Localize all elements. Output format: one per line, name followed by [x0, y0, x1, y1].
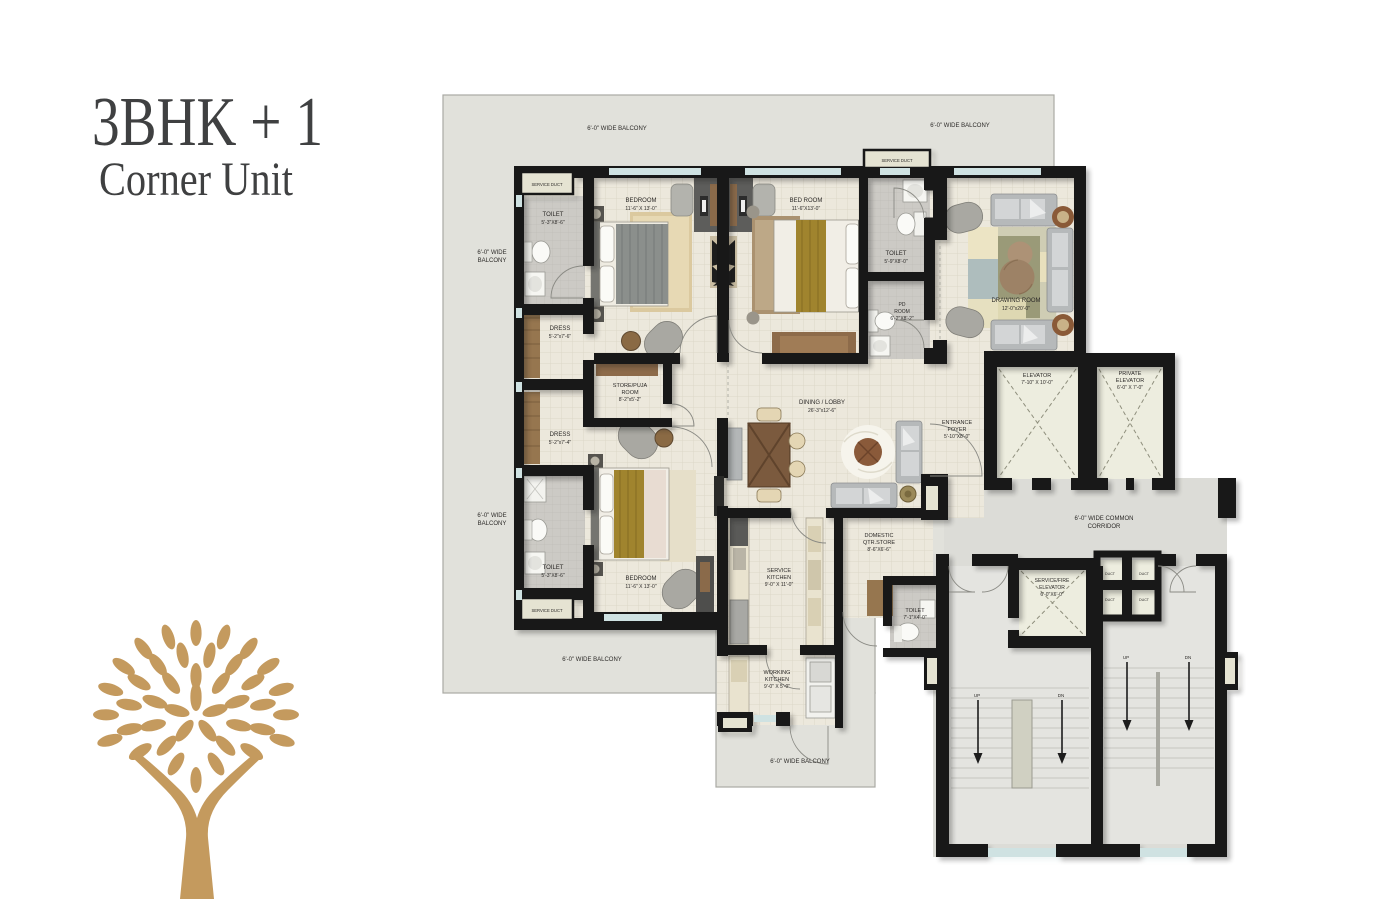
svg-text:11'-6"X13'-0": 11'-6"X13'-0" [792, 206, 821, 212]
svg-text:5'-3"X8'-6": 5'-3"X8'-6" [541, 220, 564, 226]
svg-text:ROOM: ROOM [621, 390, 639, 396]
svg-text:DUCT: DUCT [1139, 598, 1150, 602]
svg-text:SERVICE DUCT: SERVICE DUCT [531, 182, 563, 187]
svg-text:ELEVATOR: ELEVATOR [1023, 373, 1051, 379]
svg-text:WORKING: WORKING [764, 670, 791, 676]
svg-text:SERVICE DUCT: SERVICE DUCT [531, 608, 563, 613]
svg-text:TOILET: TOILET [543, 212, 564, 218]
svg-text:6'-0" WIDE: 6'-0" WIDE [477, 250, 506, 256]
svg-text:7'-10" X 10'-0": 7'-10" X 10'-0" [1021, 380, 1053, 386]
svg-text:FOYER: FOYER [948, 427, 967, 433]
svg-text:DN: DN [1185, 655, 1192, 660]
svg-text:6'-0"X6'-0": 6'-0"X6'-0" [1040, 592, 1063, 598]
svg-text:6'-2"X8'-2": 6'-2"X8'-2" [890, 316, 913, 322]
svg-text:11'-6" X 13'-0": 11'-6" X 13'-0" [625, 584, 656, 590]
svg-text:BALCONY: BALCONY [478, 521, 507, 527]
svg-text:5'-2"x7'-4": 5'-2"x7'-4" [549, 440, 572, 446]
svg-text:SERVICE DUCT: SERVICE DUCT [881, 158, 913, 163]
svg-text:26'-3"x12'-6": 26'-3"x12'-6" [808, 408, 836, 414]
svg-text:DUCT: DUCT [1105, 572, 1116, 576]
svg-text:KITCHEN: KITCHEN [765, 677, 789, 683]
svg-text:DUCT: DUCT [1105, 598, 1116, 602]
svg-text:8'-2"x5'-2": 8'-2"x5'-2" [619, 397, 642, 403]
svg-text:8'-6"X6'-6": 8'-6"X6'-6" [867, 547, 890, 553]
svg-text:UP: UP [974, 693, 980, 698]
svg-text:BEDROOM: BEDROOM [625, 576, 656, 582]
svg-text:6'-0" WIDE: 6'-0" WIDE [477, 513, 506, 519]
svg-text:DN: DN [1058, 693, 1065, 698]
svg-text:6'-0" WIDE BALCONY: 6'-0" WIDE BALCONY [587, 126, 647, 132]
svg-text:TOILET: TOILET [886, 251, 907, 257]
svg-text:12'-0"x20'-0": 12'-0"x20'-0" [1002, 306, 1030, 312]
svg-text:6'-0" WIDE BALCONY: 6'-0" WIDE BALCONY [770, 759, 830, 765]
svg-text:TOILET: TOILET [905, 608, 925, 614]
svg-text:BALCONY: BALCONY [478, 258, 507, 264]
svg-text:DUCT: DUCT [1139, 572, 1150, 576]
svg-text:BED ROOM: BED ROOM [790, 198, 823, 204]
svg-text:STORE/PUJA: STORE/PUJA [613, 383, 648, 389]
svg-text:UP: UP [1123, 655, 1129, 660]
svg-text:CORRIDOR: CORRIDOR [1088, 524, 1121, 530]
svg-text:DINING / LOBBY: DINING / LOBBY [799, 400, 845, 406]
svg-text:11'-6" X 13'-0": 11'-6" X 13'-0" [625, 206, 656, 212]
svg-text:6'-0" X 7'-0": 6'-0" X 7'-0" [1117, 385, 1143, 391]
svg-text:Corner Unit: Corner Unit [99, 153, 294, 206]
svg-text:DRESS: DRESS [550, 326, 571, 332]
svg-text:9'-0" X 11'-0": 9'-0" X 11'-0" [765, 582, 794, 588]
svg-text:5'-3"X8'-6": 5'-3"X8'-6" [541, 573, 564, 579]
svg-text:6'-0" WIDE BALCONY: 6'-0" WIDE BALCONY [562, 657, 622, 663]
svg-text:KITCHEN: KITCHEN [767, 575, 791, 581]
svg-text:5'-2"x7'-6": 5'-2"x7'-6" [549, 334, 572, 340]
svg-text:SERVICE/FIRE: SERVICE/FIRE [1035, 578, 1070, 584]
svg-text:7'-1"X4'-0": 7'-1"X4'-0" [903, 615, 926, 621]
svg-text:DRESS: DRESS [550, 432, 571, 438]
svg-text:DRAWING ROOM: DRAWING ROOM [991, 298, 1040, 304]
svg-text:6'-0" WIDE BALCONY: 6'-0" WIDE BALCONY [930, 123, 990, 129]
svg-text:DOMESTIC: DOMESTIC [864, 533, 893, 539]
svg-text:TOILET: TOILET [543, 565, 564, 571]
svg-text:BEDROOM: BEDROOM [625, 198, 656, 204]
svg-text:5'-9"X8'-0": 5'-9"X8'-0" [884, 259, 907, 265]
svg-text:9'-0" X 5'-0": 9'-0" X 5'-0" [764, 684, 790, 690]
svg-text:5'-10"X8'-0": 5'-10"X8'-0" [944, 434, 970, 440]
svg-text:ELEVATOR: ELEVATOR [1116, 378, 1144, 384]
svg-text:SERVICE: SERVICE [767, 568, 791, 574]
svg-text:3BHK + 1: 3BHK + 1 [92, 84, 323, 161]
svg-text:ELEVATOR: ELEVATOR [1039, 585, 1065, 591]
svg-text:PD: PD [899, 302, 906, 308]
svg-text:PRIVATE: PRIVATE [1119, 371, 1142, 377]
svg-text:ENTRANCE: ENTRANCE [942, 420, 973, 426]
svg-text:6'-0" WIDE COMMON: 6'-0" WIDE COMMON [1075, 516, 1134, 522]
svg-text:ROOM: ROOM [894, 309, 910, 315]
svg-text:QTR.STORE: QTR.STORE [863, 540, 895, 546]
